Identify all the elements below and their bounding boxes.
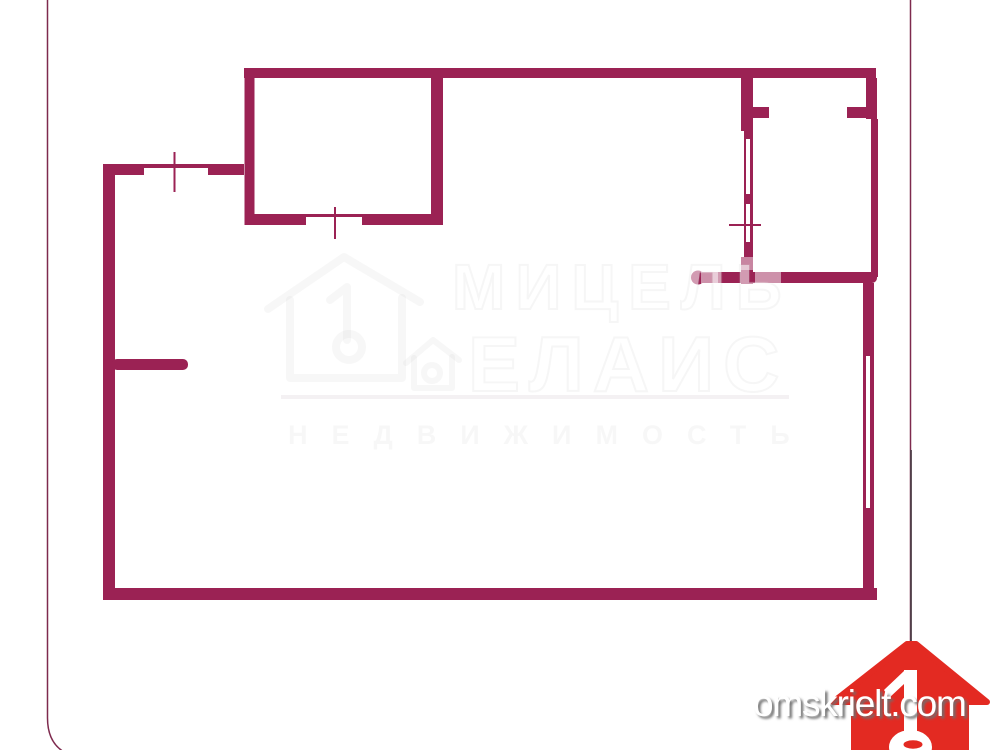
svg-text:omskrielt.com: omskrielt.com	[753, 683, 966, 724]
svg-text:НЕДВИЖИМОСТЬ: НЕДВИЖИМОСТЬ	[288, 420, 814, 450]
svg-text:ЕЛАИС: ЕЛАИС	[468, 320, 788, 408]
svg-text:МИЦЕЛЬ: МИЦЕЛЬ	[452, 251, 792, 323]
